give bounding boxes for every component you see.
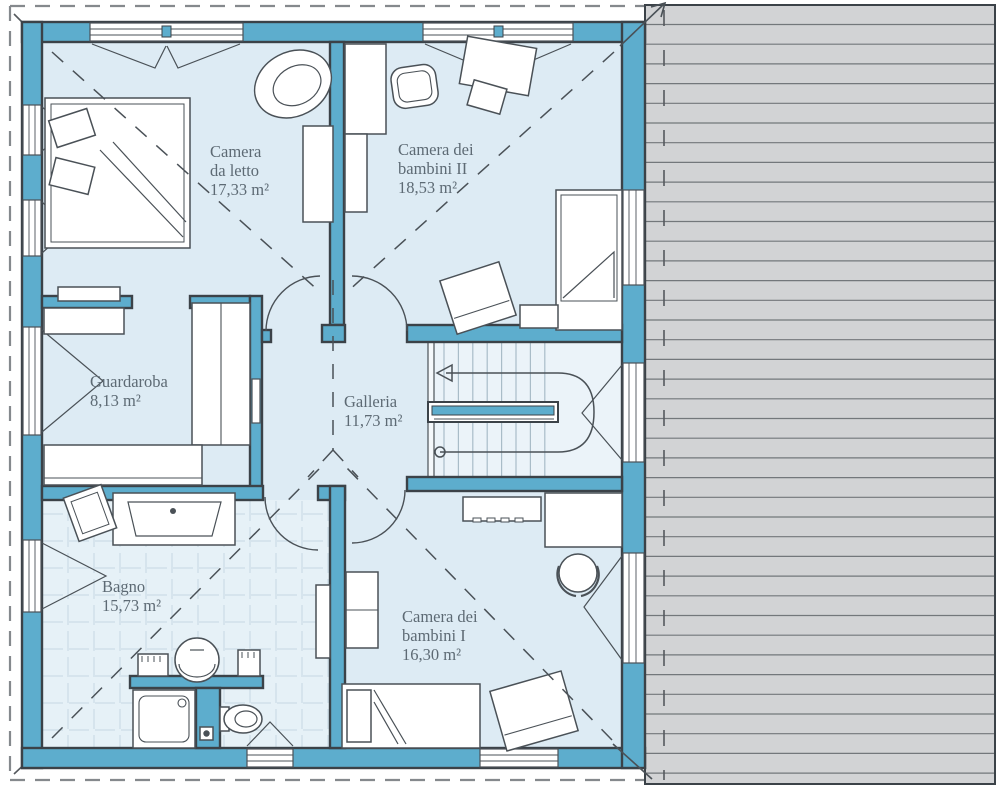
window: [247, 749, 293, 767]
desk: [463, 497, 541, 521]
window: [623, 553, 644, 663]
dresser: [58, 287, 120, 301]
shower-drain: [178, 699, 186, 707]
room-name: Bagno: [102, 577, 145, 596]
stair-railing-fill: [432, 406, 554, 415]
side-table: [389, 63, 439, 110]
room-label-galleria: Galleria 11,73 m²: [344, 392, 402, 430]
room-name: bambini II: [398, 159, 467, 178]
room-area: 8,13 m²: [90, 391, 141, 410]
wardrobe: [303, 126, 333, 222]
closet-lower-unit: [44, 445, 202, 485]
room-area: 17,33 m²: [210, 180, 269, 199]
window: [23, 200, 41, 256]
bathtub-tap: [170, 508, 176, 514]
radiator: [316, 585, 330, 658]
room-area: 16,30 m²: [402, 645, 461, 664]
room-name: Guardaroba: [90, 372, 169, 391]
window: [480, 749, 558, 767]
washbasin: [175, 638, 219, 682]
toilet-bowl: [235, 711, 257, 727]
room-area: 18,53 m²: [398, 178, 457, 197]
room-name: Camera dei: [398, 140, 474, 159]
swivel-chair: [559, 554, 597, 592]
nightstand: [520, 305, 558, 328]
wardrobe: [345, 44, 386, 134]
room-name: Camera dei: [402, 607, 478, 626]
bath-cabinet: [238, 650, 260, 676]
room-name: bambini I: [402, 626, 466, 645]
door-leaf-guardaroba: [252, 379, 260, 423]
room-name: Galleria: [344, 392, 398, 411]
room-area: 11,73 m²: [344, 411, 402, 430]
wardrobe: [345, 134, 367, 212]
room-name: Camera: [210, 142, 262, 161]
floor-plan-page: Camera da letto 17,33 m² Camera dei bamb…: [0, 0, 1000, 788]
floor-plan-canvas: Camera da letto 17,33 m² Camera dei bamb…: [0, 0, 1000, 788]
wardrobe: [545, 493, 622, 547]
room-area: 15,73 m²: [102, 596, 161, 615]
closet-shelf: [44, 308, 124, 334]
roof-area: [645, 5, 995, 784]
bed-pillow: [347, 690, 371, 742]
room-name: da letto: [210, 161, 259, 180]
window: [623, 363, 644, 462]
window-mullion: [162, 26, 171, 37]
window: [23, 540, 41, 612]
window: [23, 105, 41, 155]
single-bed-mattress: [561, 195, 617, 301]
window-mullion: [494, 26, 503, 37]
bathtub-inner: [128, 502, 221, 536]
window: [623, 190, 644, 285]
window: [23, 327, 41, 435]
roof-panel: [645, 5, 995, 784]
